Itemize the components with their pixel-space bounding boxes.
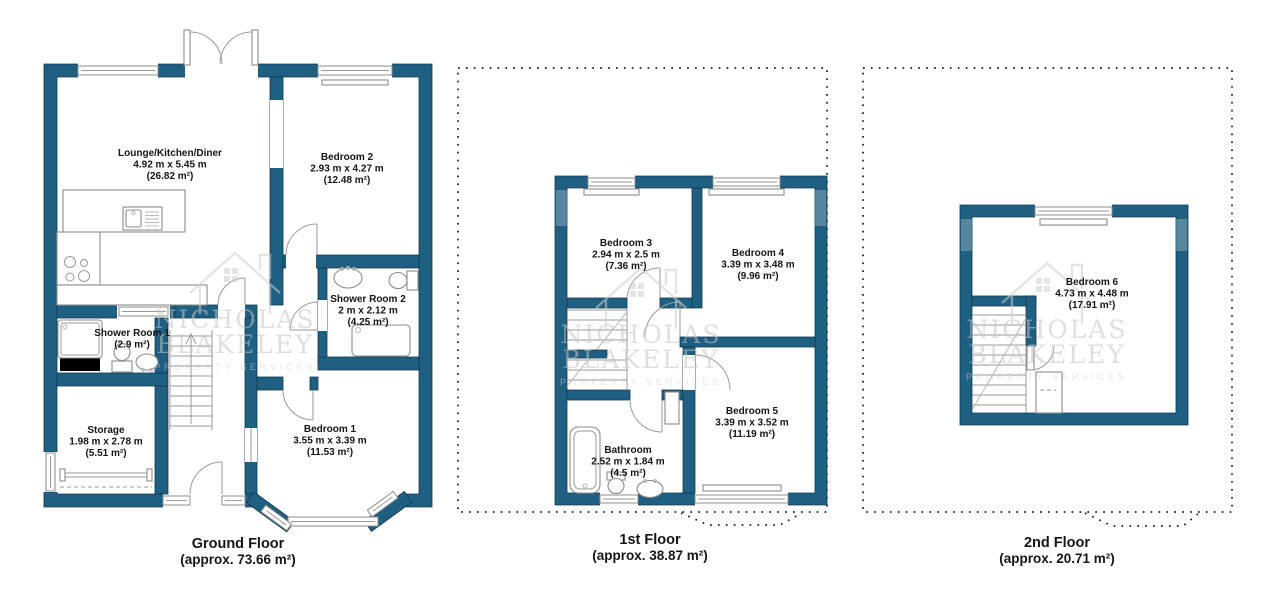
room-name: Bedroom 3 [600, 238, 653, 249]
floor-area-second: (approx. 20.71 m²) [999, 551, 1115, 566]
room-area: (5.51 m²) [85, 448, 126, 459]
wash-basin-icon [334, 267, 362, 289]
floor-title-first: 1st Floor [619, 532, 681, 548]
partition-wall [692, 188, 702, 308]
room-area: (2.9 m²) [114, 340, 150, 351]
watermark-logo: NICHOLAS BLAKELEY PROPERTY SERVICES [154, 253, 316, 373]
partition-wall [257, 377, 283, 390]
door-arc [630, 400, 662, 432]
room-name: Shower Room 2 [330, 294, 406, 305]
room-name: Shower Room 1 [94, 328, 170, 339]
door-arc [283, 390, 313, 420]
room-name: Bedroom 2 [321, 152, 374, 163]
watermark-name-line2: BLAKELEY [562, 345, 719, 374]
wash-basin-icon [637, 480, 663, 498]
room-label-storage: Storage 1.98 m x 2.78 m (5.51 m²) [69, 425, 142, 459]
second-floor-plan [863, 68, 1232, 526]
floor-area-ground: (approx. 73.66 m²) [180, 552, 296, 567]
floor-title-second: 2nd Floor [1024, 535, 1090, 551]
floor-title-ground: Ground Floor [192, 536, 285, 552]
shower-tray-icon [58, 320, 102, 358]
room-label-bedroom-2: Bedroom 2 2.93 m x 4.27 m (12.48 m²) [310, 152, 383, 186]
room-label-bedroom-5: Bedroom 5 3.39 m x 3.52 m (11.19 m²) [715, 406, 788, 440]
window [318, 66, 392, 85]
room-name: Bedroom 5 [726, 406, 779, 417]
room-area: (7.36 m²) [605, 261, 646, 272]
window [78, 66, 158, 75]
watermark-name-line2: BLAKELEY [968, 340, 1125, 369]
floor-area-first: (approx. 38.87 m²) [592, 548, 708, 563]
room-area: (4.25 m²) [347, 317, 388, 328]
partition-wall [155, 386, 168, 494]
room-dims: 4.92 m x 5.45 m [133, 160, 206, 171]
room-dims: 2 m x 2.12 m [338, 306, 398, 317]
kitchen-counter [57, 232, 207, 305]
partition-wall [310, 377, 318, 390]
floorplan-image: NICHOLAS BLAKELEY PROPERTY SERVICES NICH… [0, 0, 1285, 605]
room-label-shower-room-2: Shower Room 2 2 m x 2.12 m (4.25 m²) [330, 294, 406, 328]
bay-footprint-outline [1085, 513, 1199, 526]
room-dims: 2.93 m x 4.27 m [310, 164, 383, 175]
watermark-name-line2: BLAKELEY [156, 330, 313, 359]
room-dims: 2.94 m x 2.5 m [592, 250, 660, 261]
toilet-icon [389, 271, 418, 290]
bay-footprint-outline [681, 513, 802, 525]
room-dims: 3.39 m x 3.48 m [721, 260, 794, 271]
room-name: Storage [87, 425, 125, 436]
watermark-tagline: PROPERTY SERVICES [154, 362, 316, 373]
window [163, 496, 190, 505]
room-name: Bathroom [604, 445, 651, 456]
room-area: (4.5 m²) [610, 468, 646, 479]
window [584, 178, 639, 195]
room-area: (11.19 m²) [729, 429, 775, 440]
room-area: (12.48 m²) [324, 175, 371, 186]
watermark-tagline: PROPERTY SERVICES [560, 377, 722, 388]
room-area: (11.53 m²) [307, 447, 353, 458]
room-label-bedroom-6: Bedroom 6 4.73 m x 4.48 m (17.91 m²) [1055, 277, 1128, 311]
wardrobe-rail [60, 469, 152, 487]
room-label-lounge-kitchen-diner: Lounge/Kitchen/Diner 4.92 m x 5.45 m (26… [118, 148, 222, 182]
room-dims: 3.55 m x 3.39 m [293, 436, 366, 447]
room-label-bedroom-1: Bedroom 1 3.55 m x 3.39 m (11.53 m²) [293, 424, 366, 458]
room-name: Lounge/Kitchen/Diner [118, 148, 222, 159]
room-label-bedroom-3: Bedroom 3 2.94 m x 2.5 m (7.36 m²) [592, 238, 660, 272]
door-arc [190, 462, 222, 494]
room-dims: 3.39 m x 3.52 m [715, 418, 788, 429]
window [709, 178, 784, 195]
storage-cupboard [665, 392, 679, 424]
door-arc [218, 278, 245, 305]
room-dims: 2.52 m x 1.84 m [591, 457, 664, 468]
room-name: Bedroom 1 [304, 424, 357, 435]
floorplan-canvas: NICHOLAS BLAKELEY PROPERTY SERVICES NICH… [0, 0, 1285, 605]
door-arc [286, 224, 317, 255]
window [222, 496, 245, 505]
french-doors [184, 30, 258, 65]
window [46, 453, 55, 491]
chimney-breast [60, 357, 100, 371]
shower-tray-icon [352, 325, 410, 356]
room-dims: 1.98 m x 2.78 m [69, 437, 142, 448]
room-area: (17.91 m²) [1069, 300, 1116, 311]
partition-wall [567, 390, 630, 400]
room-label-bathroom: Bathroom 2.52 m x 1.84 m (4.5 m²) [591, 445, 664, 479]
room-area: (9.96 m²) [737, 271, 778, 282]
room-name: Bedroom 4 [732, 248, 785, 259]
watermark-tagline: PROPERTY SERVICES [966, 372, 1128, 383]
partition-wall [318, 357, 419, 370]
kitchen-sink [123, 207, 162, 230]
room-label-bedroom-4: Bedroom 4 3.39 m x 3.48 m (9.96 m²) [721, 248, 794, 282]
window [600, 495, 638, 503]
room-area: (26.82 m²) [147, 171, 194, 182]
partition-wall [57, 373, 168, 386]
room-name: Bedroom 6 [1066, 277, 1119, 288]
room-dims: 4.73 m x 4.48 m [1055, 289, 1128, 300]
